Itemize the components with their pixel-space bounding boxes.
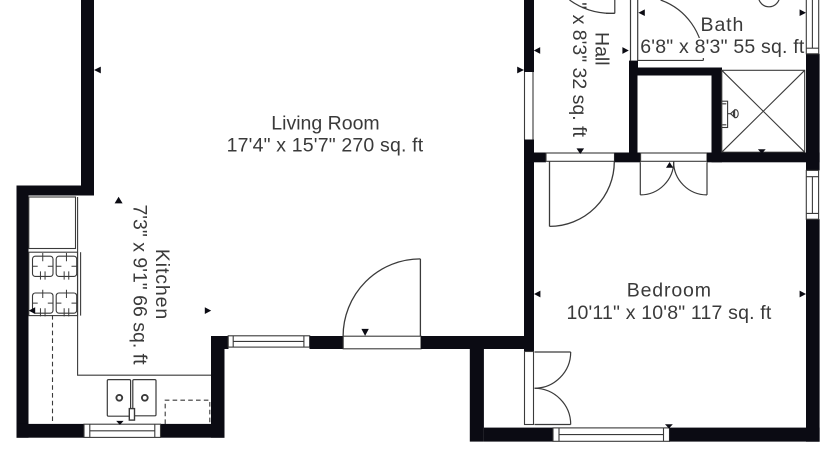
svg-text:Bedroom: Bedroom <box>627 280 712 302</box>
svg-text:17'4" x 15'7" 270 sq. ft: 17'4" x 15'7" 270 sq. ft <box>227 135 424 157</box>
svg-text:Bath: Bath <box>701 14 745 36</box>
svg-text:Kitchen: Kitchen <box>151 249 173 320</box>
svg-text:Living Room: Living Room <box>271 112 379 134</box>
svg-text:10'11" x 10'8" 117 sq. ft: 10'11" x 10'8" 117 sq. ft <box>566 302 771 324</box>
svg-text:Hall: Hall <box>591 32 613 66</box>
svg-text:" x 8'3" 32 sq. ft: " x 8'3" 32 sq. ft <box>568 2 590 137</box>
svg-text:7'3" x 9'1" 66 sq. ft: 7'3" x 9'1" 66 sq. ft <box>129 204 151 365</box>
svg-text:6'8" x 8'3" 55 sq. ft: 6'8" x 8'3" 55 sq. ft <box>640 36 805 58</box>
